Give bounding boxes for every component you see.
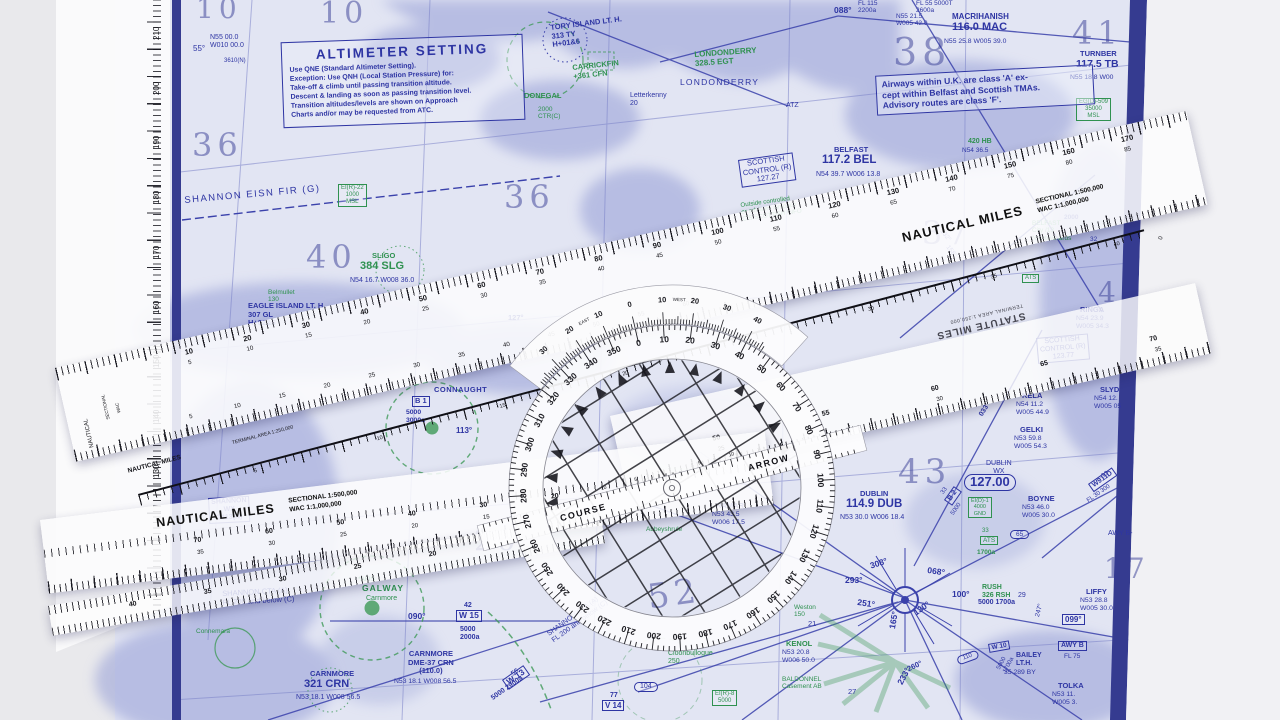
grid-arrow-icon (592, 384, 607, 400)
drift-scale-number: 10 (658, 295, 667, 304)
ring-azimuth-number: 190 (672, 631, 687, 642)
grid-arrow-icon (558, 422, 573, 437)
protractor: 105510COURSEARROW01020304050607080901001… (0, 0, 1280, 720)
ring-azimuth-number: 20 (685, 335, 696, 346)
ring-azimuth-number: 110 (814, 499, 826, 514)
grommet (664, 480, 681, 497)
ring-azimuth-number: 200 (646, 630, 662, 642)
grid-arrow-icon (549, 446, 563, 459)
course-ruler-number: 10 (728, 451, 735, 458)
course-ruler-number: 5 (634, 477, 638, 484)
ring-azimuth-number: 100 (815, 473, 826, 488)
ring-azimuth-number: 280 (518, 488, 529, 503)
course-ruler-number: 10 (600, 485, 607, 492)
chart-photo: 101036363841403743261752455°N55 00.0 W01… (0, 0, 1280, 720)
grid-arrow-icon (689, 362, 701, 376)
drift-scale-number: 20 (690, 296, 699, 306)
grid-arrow-icon (665, 361, 675, 373)
ring-azimuth-number: 290 (518, 462, 530, 478)
drift-scale-direction-label: WEST (673, 297, 686, 303)
ring-azimuth-number: 10 (659, 334, 669, 344)
grid-arrow-icon (614, 371, 628, 386)
